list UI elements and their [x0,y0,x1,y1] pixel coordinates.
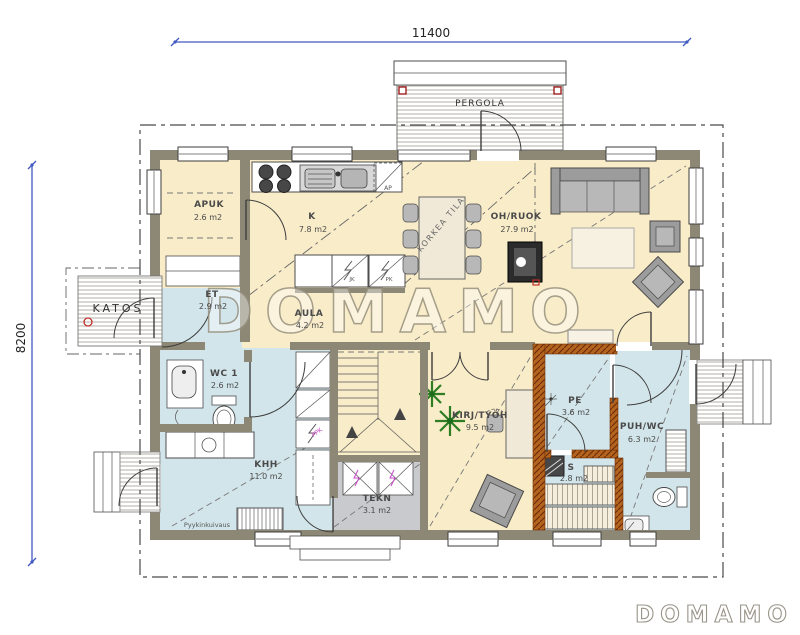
room-area-puh: 6.3 m2 [628,435,656,444]
sofa [551,168,649,214]
pergola-label: PERGOLA [455,99,505,109]
domamo-logo: DOMAMO [635,602,793,628]
room-area-k: 7.8 m2 [299,225,327,234]
dimension-left: 8200 [14,161,36,566]
puh-toilet-icon [653,487,687,507]
drying-rack-icon [237,508,283,530]
room-area-apuk: 2.6 m2 [194,213,222,222]
floor-plan-canvas: 11400 8200 DOMAMO PERGOLA KATOS APUK 2.6… [0,0,800,635]
wetwall-pe-east [610,398,618,450]
window [292,147,352,161]
wall-stair-west [330,350,338,455]
room-area-et: 2.9 m2 [199,302,227,311]
puh-shelf [666,430,686,472]
window [689,168,703,224]
dining-table-set [403,197,481,279]
room-area-kirj: 9.5 m2 [466,423,494,432]
room-area-aula: 4.2 m2 [296,321,324,330]
katos-label: KATOS [92,302,143,315]
room-label-khh: KHH [254,460,278,470]
room-area-wc1: 2.6 m2 [211,381,239,390]
window [147,170,161,214]
ap-label: AP [384,185,392,192]
window [689,238,703,266]
room-area-pe: 3.6 m2 [562,408,590,417]
window [689,290,703,344]
window [178,147,228,161]
right-deck [697,360,771,424]
armchair-1 [650,221,680,252]
room-label-apuk: APUK [194,200,224,210]
puh-partition [646,472,690,478]
hall-wardrobes [296,352,330,505]
room-area-tekn: 3.1 m2 [363,506,391,515]
wetwall-s-east [615,458,623,530]
room-label-aula: AULA [295,309,324,319]
wall-wc1-south [160,424,252,432]
room-label-tekn: TEKN [363,494,392,504]
dimension-width-label: 11400 [412,26,450,40]
room-label-s: S [568,463,575,473]
room-label-puh: PUH/WC [620,422,664,432]
room-area-s: 2.8 m2 [560,474,588,483]
room-label-et: ET [205,290,219,300]
khh-counter [166,432,254,458]
window [630,532,656,546]
room-label-kirj: KIRJ/TYÖH [452,410,508,421]
room-label-pe: PE [568,396,582,406]
window [448,532,498,546]
room-area-oh: 27.9 m2 [500,225,533,234]
room-label-k: K [308,212,316,222]
pk-label: PK [386,277,393,283]
watermark-text: DOMAMO [203,277,593,347]
floor-plan-drawing: 11400 8200 DOMAMO PERGOLA KATOS APUK 2.6… [0,0,800,635]
wetwall-west [533,344,545,530]
dimension-top: 11400 [171,26,691,46]
wall-stair-east [420,350,428,530]
room-area-khh: 11.0 m2 [249,472,282,481]
rug [572,228,634,268]
pergola-post-icon [554,87,561,94]
wetwall-mid [572,450,618,458]
jk-label: JK [348,277,355,283]
pyykinkuivaus-label: Pyykinkuivaus [184,521,231,529]
dimension-height-label: 8200 [14,323,28,354]
entry-step [290,536,400,560]
room-label-oh: OH/RUOK [491,212,542,222]
window [553,532,601,546]
window [606,147,656,161]
pergola-post-icon [399,87,406,94]
sink-icon [300,165,376,191]
wall-tekn-north [338,455,420,462]
room-label-wc1: WC 1 [210,369,238,379]
